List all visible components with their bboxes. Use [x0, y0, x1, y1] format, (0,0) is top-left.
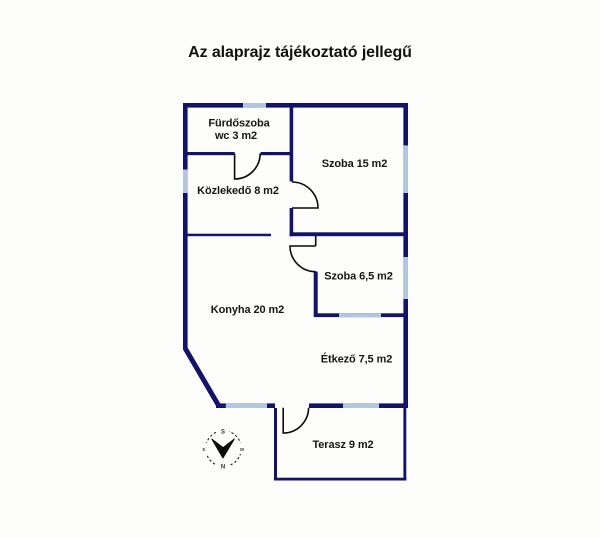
svg-text:Konyha 20 m2: Konyha 20 m2: [211, 304, 284, 316]
svg-text:Az alaprajz tájékoztató jelleg: Az alaprajz tájékoztató jellegű: [188, 44, 412, 61]
svg-text:S: S: [221, 430, 225, 436]
svg-text:Szoba 15 m2: Szoba 15 m2: [322, 158, 388, 170]
svg-text:wc 3 m2: wc 3 m2: [214, 130, 257, 142]
svg-text:Szoba 6,5 m2: Szoba 6,5 m2: [324, 271, 393, 283]
svg-text:Fürdőszoba: Fürdőszoba: [208, 118, 270, 130]
svg-text:Terasz 9 m2: Terasz 9 m2: [312, 439, 373, 451]
svg-text:Közlekedő 8 m2: Közlekedő 8 m2: [197, 185, 279, 197]
svg-text:N: N: [221, 465, 225, 471]
svg-text:Étkező 7,5 m2: Étkező 7,5 m2: [321, 353, 392, 366]
svg-text:E: E: [202, 447, 205, 452]
